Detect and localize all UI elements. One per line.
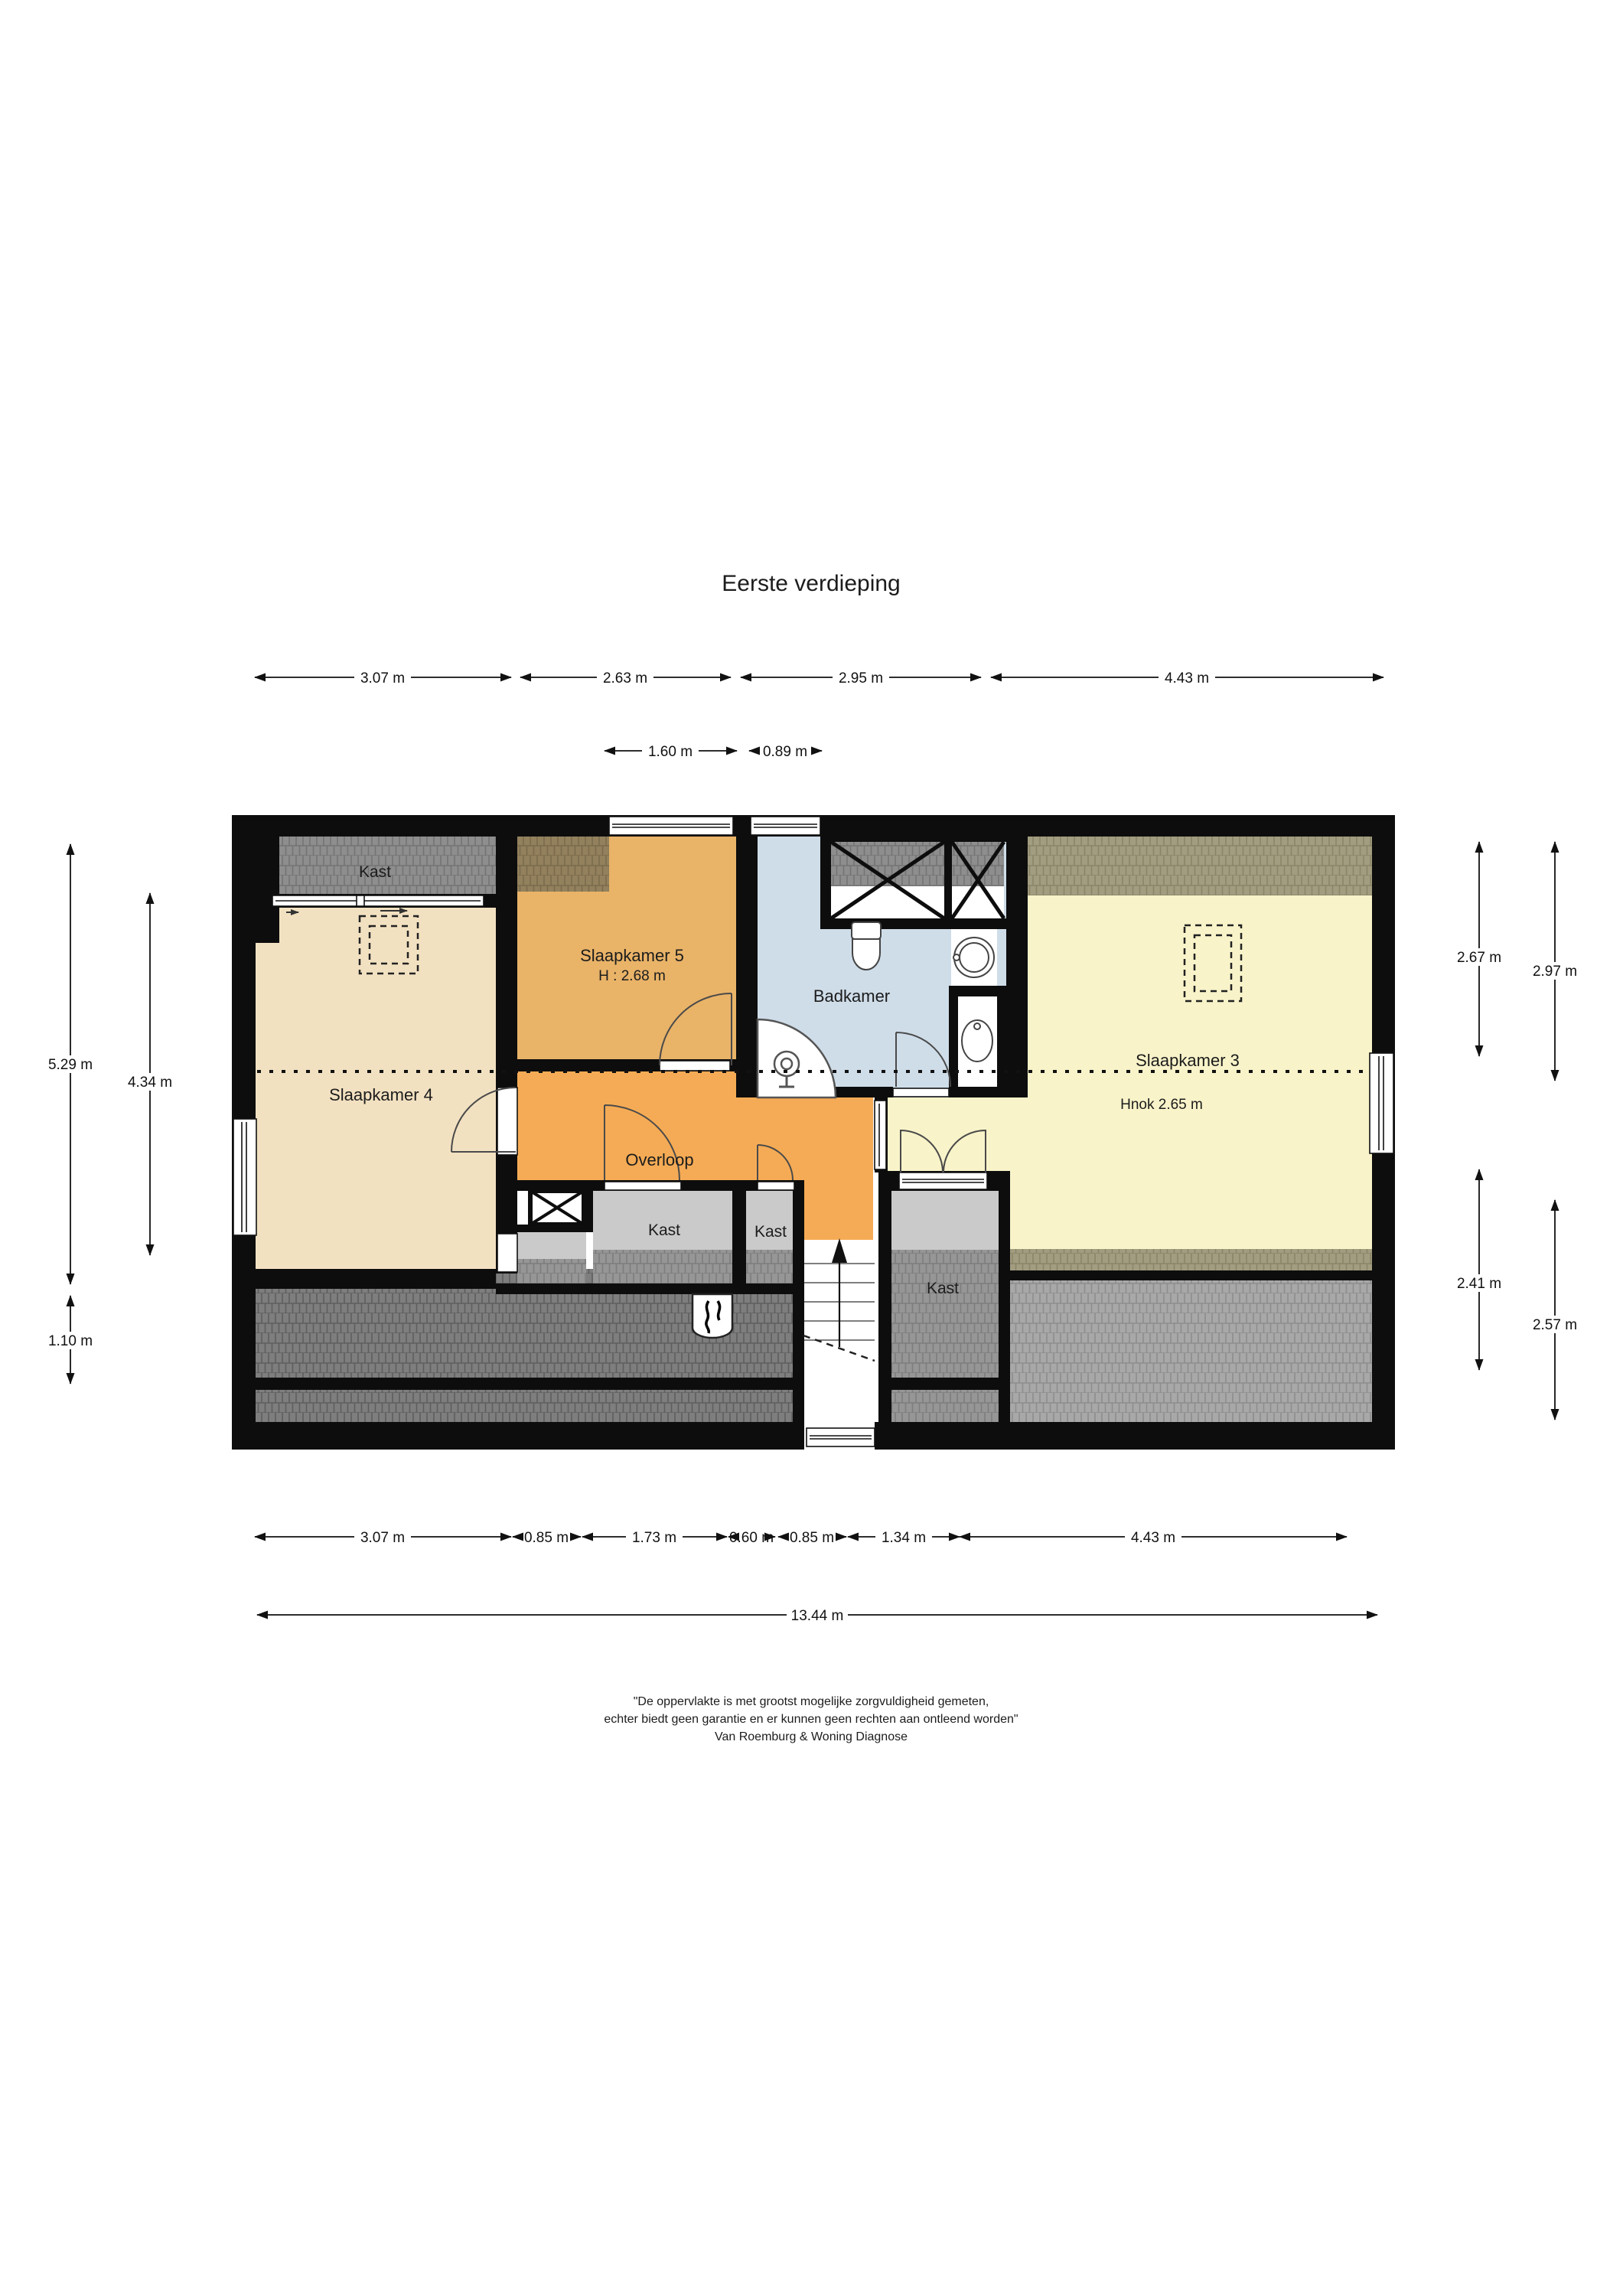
label-kast-center-right: Kast xyxy=(754,1223,787,1241)
dim-right-0: 2.67 m xyxy=(1453,842,1505,1056)
svg-text:0.60 m: 0.60 m xyxy=(729,1530,774,1546)
svg-text:2.95 m: 2.95 m xyxy=(839,670,883,687)
svg-text:2.57 m: 2.57 m xyxy=(1533,1317,1577,1333)
dim-bottom-0: 3.07 m xyxy=(255,1528,511,1546)
roof-zone-slaapkamer-3-bottom xyxy=(1010,1249,1372,1270)
door-slot-slaapkamer-5 xyxy=(660,1061,730,1071)
shower-skylight-1 xyxy=(831,842,944,918)
dim-bottom-5: 1.34 m xyxy=(848,1528,960,1546)
roof-zone-bottom-right xyxy=(1010,1270,1372,1422)
dim-left-2: 1.10 m xyxy=(44,1296,96,1384)
dim-top-inner-1: 0.89 m xyxy=(749,744,822,760)
sink-oval xyxy=(958,996,997,1087)
svg-text:4.34 m: 4.34 m xyxy=(128,1075,172,1091)
door-slot-badkamer xyxy=(893,1088,949,1097)
svg-text:2.67 m: 2.67 m xyxy=(1457,950,1501,966)
dim-top-inner-0: 1.60 m xyxy=(605,742,737,760)
door-glazed-slaapkamer-3 xyxy=(899,1172,987,1189)
dim-bottom-6: 4.43 m xyxy=(960,1528,1347,1546)
dim-right-2: 2.41 m xyxy=(1453,1169,1505,1370)
sink-round xyxy=(951,929,997,986)
dim-top-2: 2.95 m xyxy=(741,669,981,687)
svg-text:3.07 m: 3.07 m xyxy=(360,1530,405,1546)
svg-text:5.29 m: 5.29 m xyxy=(48,1057,93,1073)
room-slaapkamer-3-floor-ext2 xyxy=(1010,1171,1028,1249)
svg-text:0.89 m: 0.89 m xyxy=(763,744,807,760)
disclaimer-line-3: Van Roemburg & Woning Diagnose xyxy=(715,1730,908,1743)
dim-total-width: 13.44 m xyxy=(257,1606,1377,1624)
roof-zone-slaapkamer-3-top xyxy=(1028,837,1372,895)
dim-top-3: 4.43 m xyxy=(991,669,1383,687)
dim-left-1: 4.34 m xyxy=(124,893,176,1255)
svg-text:0.85 m: 0.85 m xyxy=(524,1530,569,1546)
svg-text:0.85 m: 0.85 m xyxy=(790,1530,834,1546)
window-top-2 xyxy=(751,817,820,835)
window-left-wall xyxy=(233,1119,256,1235)
label-slaapkamer-5-height: H : 2.68 m xyxy=(598,968,666,984)
svg-text:13.44 m: 13.44 m xyxy=(791,1608,844,1624)
svg-text:2.63 m: 2.63 m xyxy=(603,670,647,687)
window-kast-band xyxy=(272,895,484,906)
closet-center-right-tiles xyxy=(746,1250,793,1283)
label-kast-center-left: Kast xyxy=(648,1221,680,1239)
shower-skylight-2 xyxy=(952,842,1004,918)
label-kast-right: Kast xyxy=(927,1280,959,1297)
floor-plan: Kast Slaapkamer 5 H : 2.68 m Badkamer Sl… xyxy=(232,815,1395,1463)
dim-left-0: 5.29 m xyxy=(44,844,96,1284)
room-slaapkamer-3-floor-ext xyxy=(888,1097,1028,1171)
dim-top-1: 2.63 m xyxy=(520,669,731,687)
svg-text:1.73 m: 1.73 m xyxy=(632,1530,676,1546)
window-top-1 xyxy=(609,817,733,835)
svg-text:3.07 m: 3.07 m xyxy=(360,670,405,687)
window-overloop-s3 xyxy=(875,1101,886,1169)
closet-center-left-tiles xyxy=(593,1250,732,1283)
closet-cell-tiles xyxy=(517,1259,586,1283)
floor-plan-canvas: Eerste verdieping xyxy=(0,0,1623,2296)
door-slot-closet-2 xyxy=(758,1182,794,1190)
toilet xyxy=(852,922,881,970)
dim-bottom-4: 0.85 m xyxy=(778,1530,846,1546)
svg-text:2.41 m: 2.41 m xyxy=(1457,1276,1501,1292)
label-kast-top-left: Kast xyxy=(359,863,391,881)
door-slot-slaapkamer-4 xyxy=(497,1088,517,1155)
label-slaapkamer-5: Slaapkamer 5 xyxy=(580,946,684,965)
svg-text:1.10 m: 1.10 m xyxy=(48,1333,93,1349)
shaft-x-box xyxy=(530,1191,584,1225)
dim-bottom-1: 0.85 m xyxy=(513,1530,581,1546)
svg-text:4.43 m: 4.43 m xyxy=(1131,1530,1175,1546)
disclaimer: "De oppervlakte is met grootst mogelijke… xyxy=(604,1695,1018,1743)
window-cell xyxy=(497,1234,517,1272)
window-stairs-bottom xyxy=(807,1428,875,1446)
label-slaapkamer-4: Slaapkamer 4 xyxy=(329,1085,433,1104)
label-slaapkamer-3-height: Hnok 2.65 m xyxy=(1120,1097,1203,1113)
svg-text:2.97 m: 2.97 m xyxy=(1533,964,1577,980)
closet-right-tiles xyxy=(891,1250,999,1422)
svg-text:1.60 m: 1.60 m xyxy=(648,744,693,760)
floor-plan-page: { "page": { "title": "Eerste verdieping"… xyxy=(0,0,1623,2296)
disclaimer-line-2: echter biedt geen garantie en er kunnen … xyxy=(604,1713,1018,1726)
label-overloop: Overloop xyxy=(625,1150,693,1169)
room-slaapkamer-3-floor xyxy=(1028,837,1372,1249)
door-slot-closet-1 xyxy=(605,1182,681,1190)
dim-right-1: 2.97 m xyxy=(1529,842,1581,1081)
dim-right-3: 2.57 m xyxy=(1529,1200,1581,1420)
window-right-wall xyxy=(1370,1053,1393,1153)
page-title: Eerste verdieping xyxy=(722,571,900,596)
dim-top-0: 3.07 m xyxy=(255,669,511,687)
dim-bottom-2: 1.73 m xyxy=(582,1528,727,1546)
dim-bottom-3: 0.60 m xyxy=(728,1530,775,1546)
roof-zone-slaapkamer-5 xyxy=(517,837,609,892)
boiler-unit xyxy=(693,1294,732,1338)
svg-text:1.34 m: 1.34 m xyxy=(882,1530,926,1546)
svg-text:4.43 m: 4.43 m xyxy=(1165,670,1209,687)
disclaimer-line-1: "De oppervlakte is met grootst mogelijke… xyxy=(634,1695,989,1708)
label-badkamer: Badkamer xyxy=(813,987,890,1006)
label-slaapkamer-3: Slaapkamer 3 xyxy=(1136,1051,1240,1070)
